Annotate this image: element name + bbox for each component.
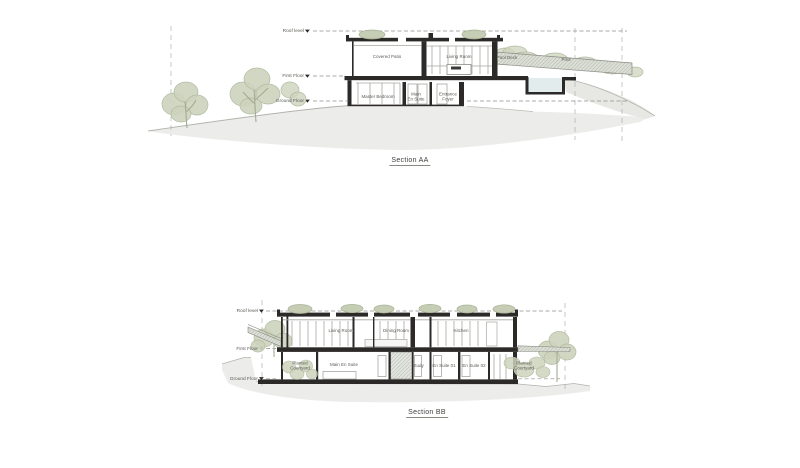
architectural-sections-sheet: Roof level First Floor Ground Floor Cove… [0, 0, 800, 468]
aa-title: Section AA [389, 157, 430, 166]
bb-level-label-first: First Floor [236, 346, 258, 351]
bb-room-label-en-suite-02: En Suite 02 [462, 363, 485, 368]
labels-overlay: Roof level First Floor Ground Floor Cove… [0, 0, 800, 468]
aa-room-label-living-room: Living Room [447, 54, 472, 59]
bb-title: Section BB [406, 409, 448, 418]
aa-room-label-pool: Pool [562, 57, 571, 62]
aa-room-label-pool-deck: Pool Deck [497, 55, 517, 60]
aa-room-label-main-en-suite: Main En Suite [408, 91, 425, 101]
aa-room-label-entrance-foyer: Entrance Foyer [439, 91, 457, 101]
bb-level-label-roof: Roof level [237, 308, 258, 313]
aa-level-label-roof: Roof level [283, 28, 304, 33]
bb-room-label-main-en-suite: Main En Suite [330, 362, 358, 367]
aa-level-label-first: First Floor [282, 73, 304, 78]
aa-room-label-covered-patio: Covered Patio [373, 54, 401, 59]
aa-level-label-ground: Ground Floor [276, 98, 304, 103]
aa-room-label-master-bedroom: Master Bedroom [361, 94, 394, 99]
bb-level-label-ground: Ground Floor [230, 376, 258, 381]
bb-room-label-study: Study [412, 363, 423, 368]
bb-room-label-dining-room: Dining Room [383, 328, 409, 333]
bb-room-label-kitchen: Kitchen [454, 328, 469, 333]
bb-room-label-living-room: Living Room [329, 328, 354, 333]
bb-room-label-planted-courtyard-right: Planted Courtyard [514, 361, 534, 371]
bb-room-label-en-suite-01: En Suite 01 [432, 363, 455, 368]
bb-room-label-planted-courtyard-left: Planted Courtyard [290, 361, 310, 371]
